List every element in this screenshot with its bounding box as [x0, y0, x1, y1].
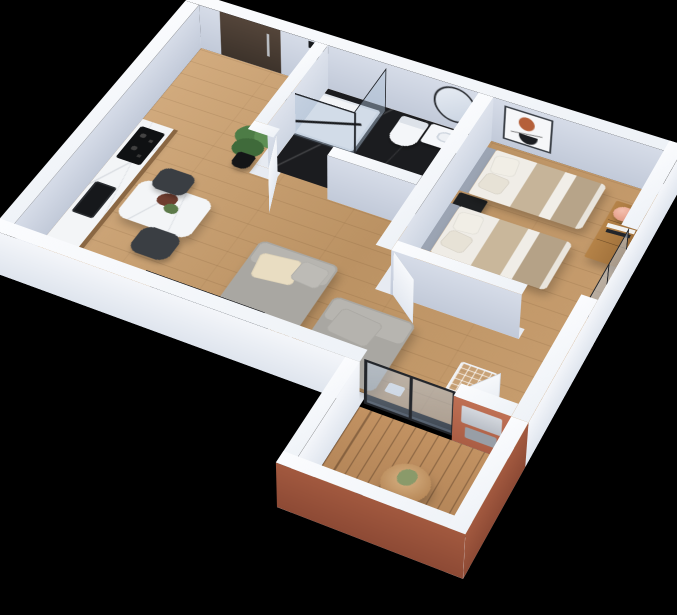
art-circle	[518, 115, 535, 133]
door-handle[interactable]	[267, 34, 270, 57]
apartment-plan	[0, 35, 677, 591]
glass-door-mullion	[409, 378, 413, 419]
shower-glass-brace	[284, 119, 362, 126]
floorplan-scene	[0, 0, 677, 615]
